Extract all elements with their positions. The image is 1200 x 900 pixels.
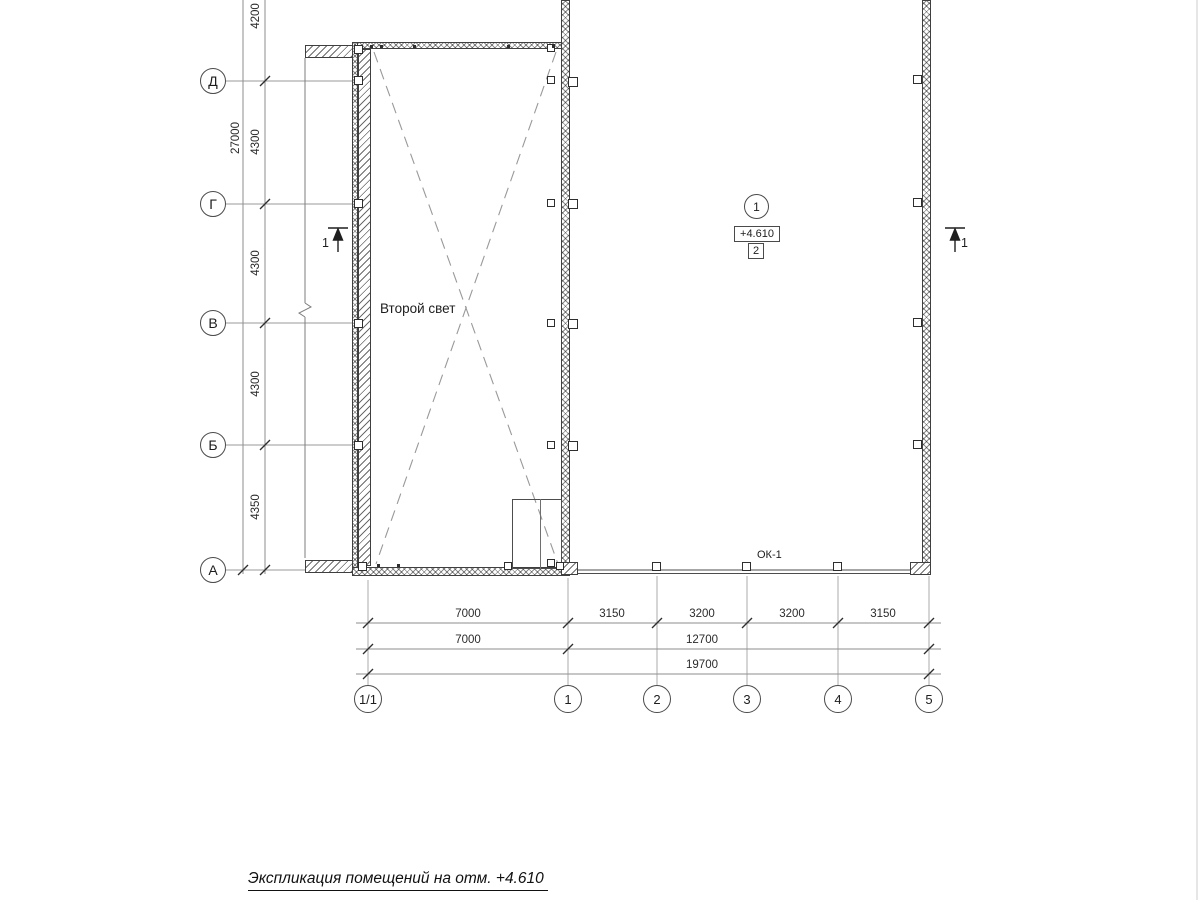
column-marker bbox=[358, 562, 367, 571]
dim-left-segment: 4350 bbox=[249, 467, 263, 547]
column-marker bbox=[354, 199, 363, 208]
column-marker bbox=[568, 441, 578, 451]
column-marker bbox=[913, 75, 922, 84]
axis-bubble-row-b: Б bbox=[200, 432, 226, 458]
column-marker bbox=[568, 319, 578, 329]
column-marker bbox=[504, 562, 512, 570]
column-marker bbox=[354, 76, 363, 85]
column-marker bbox=[354, 441, 363, 450]
ledge-top-left bbox=[305, 45, 353, 58]
dim-left-segment: 4200 bbox=[249, 0, 263, 56]
sheet-title: Экспликация помещений на отм. +4.610 bbox=[248, 870, 548, 891]
column-marker bbox=[742, 562, 751, 571]
axis-bubble-col-3: 3 bbox=[733, 685, 761, 713]
ledge-bottom-left bbox=[305, 560, 353, 573]
section-mark-left bbox=[328, 228, 348, 252]
floor-plan-drawing: Д Г В Б А 1/1 1 2 3 4 5 27000 4200 4300 … bbox=[0, 0, 1200, 900]
axis-bubble-col-1: 1 bbox=[554, 685, 582, 713]
dim-left-segment: 4300 bbox=[249, 344, 263, 424]
anchor-dot bbox=[413, 45, 416, 48]
column-marker bbox=[556, 562, 564, 570]
dim-bottom: 3200 bbox=[779, 608, 805, 620]
room-code: 2 bbox=[753, 245, 759, 257]
dim-left-segment: 4300 bbox=[249, 102, 263, 182]
dim-bottom: 7000 bbox=[455, 634, 481, 646]
axis-bubble-row-a: А bbox=[200, 557, 226, 583]
section-number-right: 1 bbox=[961, 236, 968, 250]
axis-bubble-row-g: Г bbox=[200, 191, 226, 217]
void-label: Второй свет bbox=[380, 301, 455, 316]
column-marker bbox=[568, 199, 578, 209]
dimension-ticks bbox=[238, 76, 934, 679]
dim-bottom: 3150 bbox=[870, 608, 896, 620]
dim-left-overall: 27000 bbox=[229, 98, 243, 178]
column-marker bbox=[652, 562, 661, 571]
axis-label: Г bbox=[209, 196, 217, 212]
column-marker bbox=[913, 198, 922, 207]
anchor-dot bbox=[380, 45, 383, 48]
column-marker bbox=[547, 76, 555, 84]
corner-column-right bbox=[910, 562, 931, 575]
room-number: 1 bbox=[753, 200, 760, 214]
axis-bubble-col-2: 2 bbox=[643, 685, 671, 713]
dim-bottom: 12700 bbox=[686, 634, 718, 646]
axis-label: Б bbox=[208, 437, 217, 453]
column-marker bbox=[913, 318, 922, 327]
wall-top-band bbox=[352, 42, 570, 49]
bottom-dimension-lines bbox=[356, 623, 941, 674]
axis-bubble-col-5: 5 bbox=[915, 685, 943, 713]
column-marker bbox=[547, 559, 555, 567]
anchor-dot bbox=[377, 564, 380, 567]
dim-bottom: 3150 bbox=[599, 608, 625, 620]
plan-linework bbox=[0, 0, 1200, 900]
column-marker bbox=[354, 45, 363, 54]
bottom-extension-lines bbox=[368, 576, 929, 685]
edge-line-with-break bbox=[299, 58, 311, 558]
anchor-dot bbox=[370, 45, 373, 48]
axis-label: 1/1 bbox=[359, 692, 377, 707]
column-marker bbox=[547, 199, 555, 207]
axis-label: Д bbox=[208, 73, 217, 89]
axis-label: А bbox=[208, 562, 217, 578]
dim-bottom-overall: 19700 bbox=[686, 659, 718, 671]
anchor-dot bbox=[507, 45, 510, 48]
axis-label: 4 bbox=[834, 692, 841, 707]
column-marker bbox=[354, 319, 363, 328]
section-number-left: 1 bbox=[322, 236, 329, 250]
row-axis-lines bbox=[226, 81, 352, 570]
wall-left-core bbox=[358, 49, 371, 566]
axis-bubble-col-4: 4 bbox=[824, 685, 852, 713]
room-elevation-box: +4.610 bbox=[734, 226, 780, 242]
dim-bottom: 7000 bbox=[455, 608, 481, 620]
axis-label: В bbox=[208, 315, 217, 331]
column-marker bbox=[547, 441, 555, 449]
axis-bubble-row-d: Д bbox=[200, 68, 226, 94]
column-marker bbox=[568, 77, 578, 87]
room-code-box: 2 bbox=[748, 243, 764, 259]
axis-label: 3 bbox=[743, 692, 750, 707]
axis-label: 1 bbox=[564, 692, 571, 707]
room-number-bubble: 1 bbox=[744, 194, 769, 219]
door-leaf-divider bbox=[540, 499, 541, 569]
column-marker bbox=[913, 440, 922, 449]
wall-right bbox=[922, 0, 931, 570]
dim-left-segment: 4300 bbox=[249, 223, 263, 303]
room-elevation: +4.610 bbox=[740, 228, 774, 240]
window-mark-label: ОК-1 bbox=[757, 549, 782, 561]
anchor-dot bbox=[397, 564, 400, 567]
column-marker bbox=[833, 562, 842, 571]
axis-label: 5 bbox=[925, 692, 932, 707]
column-marker bbox=[547, 319, 555, 327]
axis-bubble-row-v: В bbox=[200, 310, 226, 336]
dim-bottom: 3200 bbox=[689, 608, 715, 620]
anchor-dot bbox=[552, 45, 555, 48]
axis-bubble-col-1-1: 1/1 bbox=[354, 685, 382, 713]
axis-label: 2 bbox=[653, 692, 660, 707]
